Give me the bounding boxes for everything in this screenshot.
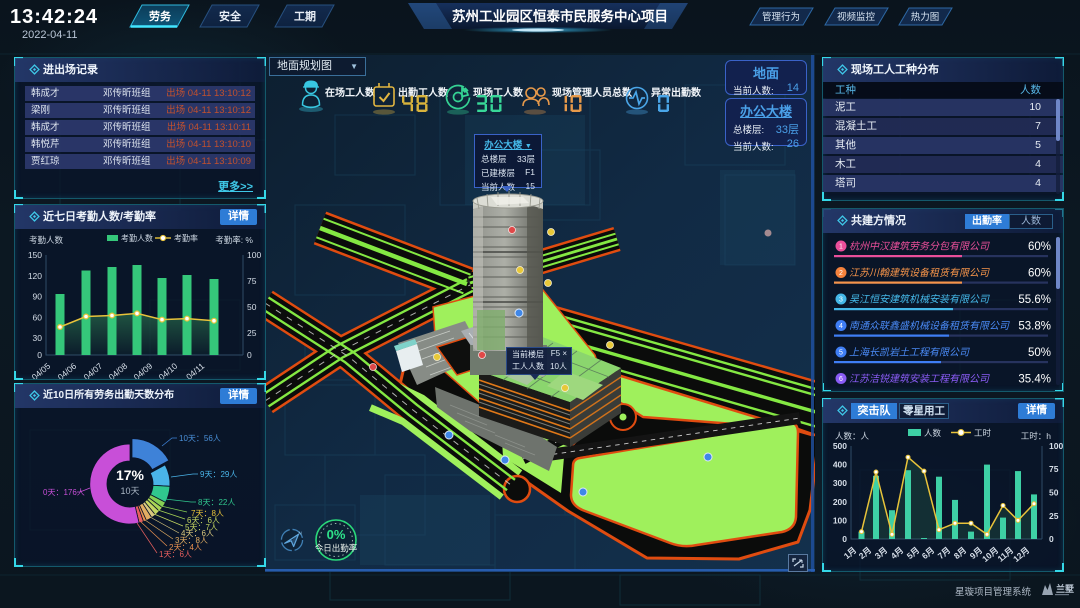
- svg-text:8月: 8月: [952, 545, 969, 561]
- svg-text:劳务: 劳务: [149, 9, 172, 23]
- svg-text:考勤率: %: 考勤率: %: [215, 235, 253, 245]
- svg-text:工期: 工期: [294, 9, 316, 23]
- svg-text:04/05: 04/05: [30, 361, 53, 379]
- svg-text:7月: 7月: [936, 545, 953, 561]
- svg-text:400: 400: [833, 460, 847, 470]
- svg-text:0: 0: [1049, 534, 1054, 544]
- svg-text:55.6%: 55.6%: [1018, 294, 1051, 306]
- svg-text:0: 0: [842, 534, 847, 544]
- svg-text:10天: 10天: [120, 486, 139, 496]
- svg-text:3月: 3月: [873, 545, 890, 561]
- svg-text:考勤率: 考勤率: [174, 233, 198, 243]
- svg-text:53.8%: 53.8%: [1018, 321, 1051, 333]
- svg-text:现场管理人员总数: 现场管理人员总数: [552, 86, 633, 99]
- svg-text:9天：29人: 9天：29人: [200, 470, 237, 479]
- svg-text:0天：176人: 0天：176人: [43, 488, 85, 497]
- svg-text:今日出勤率: 今日出勤率: [315, 543, 358, 553]
- svg-text:考勤人数: 考勤人数: [29, 235, 64, 245]
- svg-text:50: 50: [247, 302, 257, 312]
- svg-text:6月: 6月: [920, 545, 937, 561]
- svg-text:04/11: 04/11: [184, 361, 206, 379]
- svg-text:4: 4: [839, 323, 843, 330]
- svg-text:25: 25: [247, 328, 257, 338]
- svg-text:人数: 人数: [924, 428, 942, 438]
- svg-text:在场工人数: 在场工人数: [325, 86, 376, 99]
- svg-text:100: 100: [247, 250, 261, 260]
- svg-text:04/10: 04/10: [157, 361, 180, 379]
- svg-text:吴江恒安建筑机械安装有限公司: 吴江恒安建筑机械安装有限公司: [849, 294, 990, 306]
- svg-text:100: 100: [833, 515, 847, 525]
- svg-text:1天：6人: 1天：6人: [159, 550, 192, 559]
- svg-text:75: 75: [247, 276, 257, 286]
- svg-text:50: 50: [1049, 488, 1059, 498]
- svg-text:0: 0: [247, 350, 252, 360]
- svg-text:5: 5: [839, 350, 843, 357]
- svg-text:安全: 安全: [219, 9, 242, 23]
- svg-text:60%: 60%: [1028, 268, 1051, 280]
- svg-text:0: 0: [37, 350, 42, 360]
- svg-text:杭州中汉建筑劳务分包有限公司: 杭州中汉建筑劳务分包有限公司: [849, 241, 990, 253]
- svg-text:苏州工业园区恒泰市民服务中心项目: 苏州工业园区恒泰市民服务中心项目: [452, 8, 668, 24]
- svg-text:60%: 60%: [1028, 241, 1051, 253]
- svg-text:考勤人数: 考勤人数: [121, 233, 153, 243]
- svg-text:3: 3: [839, 297, 843, 304]
- svg-text:30: 30: [33, 333, 43, 343]
- svg-text:人数：人: 人数：人: [835, 431, 870, 441]
- svg-text:0%: 0%: [327, 527, 346, 542]
- svg-text:视频监控: 视频监控: [837, 11, 876, 23]
- svg-text:04/06: 04/06: [56, 361, 79, 379]
- svg-text:500: 500: [833, 441, 847, 451]
- svg-text:管理行为: 管理行为: [762, 11, 800, 23]
- svg-text:工时：h: 工时：h: [1021, 431, 1052, 441]
- svg-text:150: 150: [28, 250, 42, 260]
- svg-text:10天：56人: 10天：56人: [179, 434, 221, 443]
- svg-text:25: 25: [1049, 511, 1059, 521]
- svg-text:04/08: 04/08: [107, 361, 130, 379]
- svg-text:90: 90: [33, 292, 43, 302]
- svg-text:12月: 12月: [1011, 545, 1031, 564]
- svg-text:江苏洁锐建筑安装工程有限公司: 江苏洁锐建筑安装工程有限公司: [849, 373, 990, 385]
- svg-text:04/09: 04/09: [132, 361, 155, 379]
- svg-text:热力图: 热力图: [911, 11, 940, 23]
- svg-text:120: 120: [28, 271, 42, 281]
- svg-text:04/07: 04/07: [82, 361, 105, 379]
- svg-text:2: 2: [839, 270, 843, 277]
- svg-text:200: 200: [833, 497, 847, 507]
- svg-text:4月: 4月: [889, 545, 906, 561]
- svg-text:兰墅: 兰墅: [1056, 583, 1074, 594]
- svg-text:50%: 50%: [1028, 347, 1051, 359]
- svg-text:35.4%: 35.4%: [1018, 374, 1051, 386]
- svg-text:6: 6: [839, 376, 843, 383]
- svg-text:75: 75: [1049, 464, 1059, 474]
- svg-text:N: N: [299, 530, 302, 535]
- svg-text:17%: 17%: [116, 467, 145, 483]
- svg-text:300: 300: [833, 478, 847, 488]
- svg-text:2月: 2月: [857, 545, 874, 561]
- svg-text:江苏川翰建筑设备租赁有限公司: 江苏川翰建筑设备租赁有限公司: [849, 267, 990, 279]
- svg-text:上海长凯岩土工程有限公司: 上海长凯岩土工程有限公司: [849, 347, 970, 359]
- svg-text:1: 1: [839, 244, 843, 251]
- svg-text:60: 60: [33, 312, 43, 322]
- svg-text:南通众联鑫盛机械设备租赁有限公司: 南通众联鑫盛机械设备租赁有限公司: [849, 320, 1010, 332]
- svg-text:工时: 工时: [974, 428, 992, 438]
- svg-text:100: 100: [1049, 441, 1063, 451]
- svg-text:8天：22人: 8天：22人: [198, 498, 235, 507]
